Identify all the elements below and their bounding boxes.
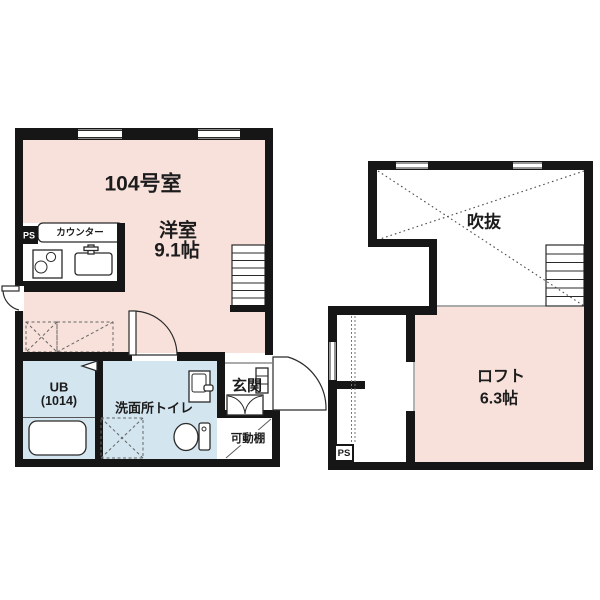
bathtub-icon xyxy=(29,421,86,455)
kitchen-sink-icon xyxy=(75,253,112,275)
unit-bath-label: UB xyxy=(50,380,69,395)
unit-number-label: 104号室 xyxy=(104,172,181,196)
wall-segment xyxy=(584,161,593,470)
entrance-door xyxy=(273,357,326,410)
wall-segment xyxy=(217,352,225,418)
main-room-size-label: 9.1帖 xyxy=(154,239,199,262)
wall-segment xyxy=(406,411,415,470)
movable-shelf-label: 可動棚 xyxy=(231,431,266,445)
floor-plan-page: 104号室 洋室 9.1帖 カウンター PS UB (1014) 洗面所トイレ … xyxy=(0,0,600,600)
faucet-bar-icon xyxy=(84,247,98,251)
wall-segment xyxy=(368,239,437,247)
window-icon xyxy=(198,130,240,139)
wall-segment xyxy=(328,462,593,470)
entrance-label: 玄関 xyxy=(232,377,262,395)
wall-segment xyxy=(328,381,365,389)
main-room-label: 洋室 xyxy=(159,219,197,242)
wall-segment xyxy=(272,410,280,467)
vanity-sink-icon xyxy=(189,371,213,402)
wall-segment xyxy=(95,360,103,459)
wall-segment xyxy=(265,128,273,355)
wall-segment xyxy=(15,352,132,361)
shoe-cabinet-icon xyxy=(227,395,263,415)
service-door xyxy=(2,286,24,311)
wall-segment xyxy=(368,161,377,247)
wall-segment xyxy=(328,306,437,315)
floor1-plan: 104号室 洋室 9.1帖 カウンター PS UB (1014) 洗面所トイレ … xyxy=(2,128,326,467)
counter-label: カウンター xyxy=(56,227,104,239)
wall-segment xyxy=(429,239,437,309)
stairs-loft xyxy=(546,245,584,306)
void-label: 吹抜 xyxy=(467,212,502,232)
window-icon xyxy=(329,342,336,380)
ladder-marks xyxy=(352,316,356,443)
wall-segment xyxy=(23,281,125,292)
window-icon xyxy=(513,162,542,169)
floor-plan-drawing: 104号室 洋室 9.1帖 カウンター PS UB (1014) 洗面所トイレ … xyxy=(0,0,600,600)
pipe-space-label: PS xyxy=(23,231,35,241)
toilet-icon xyxy=(174,423,210,451)
wall-segment xyxy=(406,306,415,362)
unit-bath-size-label: (1014) xyxy=(41,394,77,408)
loft-label: ロフト xyxy=(477,369,525,386)
loft-plan: PS 吹抜 ロフト 6.3帖 xyxy=(328,161,593,470)
washroom-label: 洗面所トイレ xyxy=(115,401,193,416)
loft-size-label: 6.3帖 xyxy=(480,389,518,408)
wall-segment xyxy=(15,459,280,467)
window-icon xyxy=(396,162,428,169)
pipe-space-label: PS xyxy=(338,448,351,459)
window-icon xyxy=(78,130,122,139)
